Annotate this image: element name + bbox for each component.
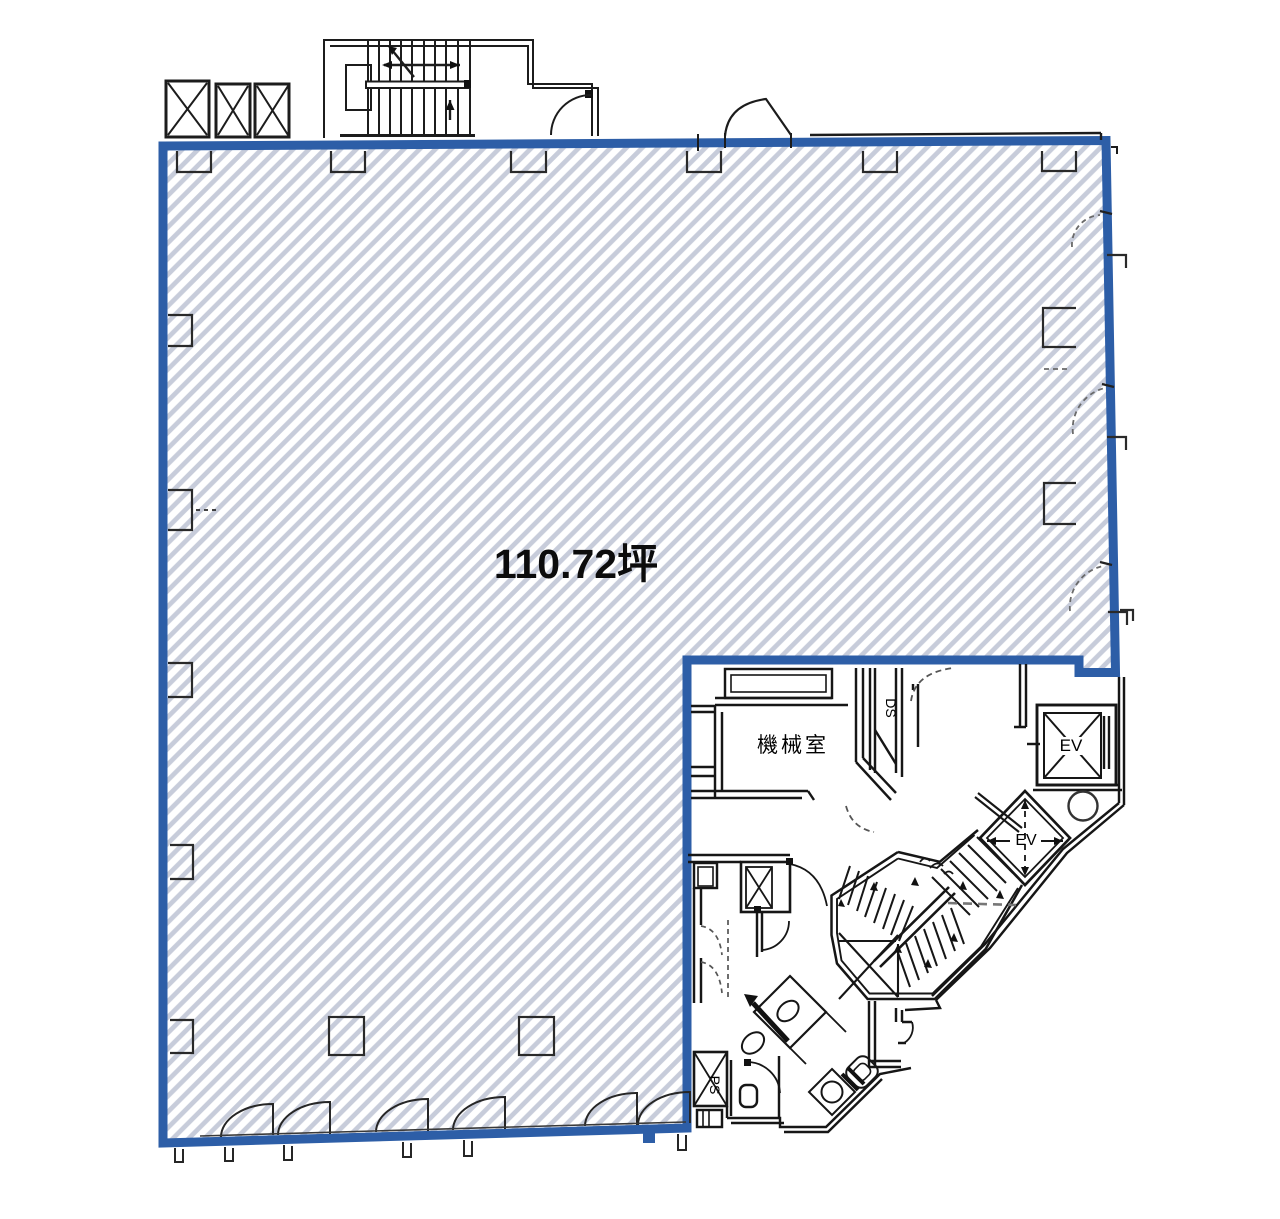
svg-text:EV: EV bbox=[1015, 832, 1037, 849]
svg-text:DS: DS bbox=[883, 698, 899, 717]
svg-text:110.72坪: 110.72坪 bbox=[494, 541, 658, 587]
svg-text:EV: EV bbox=[1060, 736, 1083, 755]
svg-text:PS: PS bbox=[707, 1076, 723, 1095]
svg-text:機械室: 機械室 bbox=[757, 734, 829, 757]
